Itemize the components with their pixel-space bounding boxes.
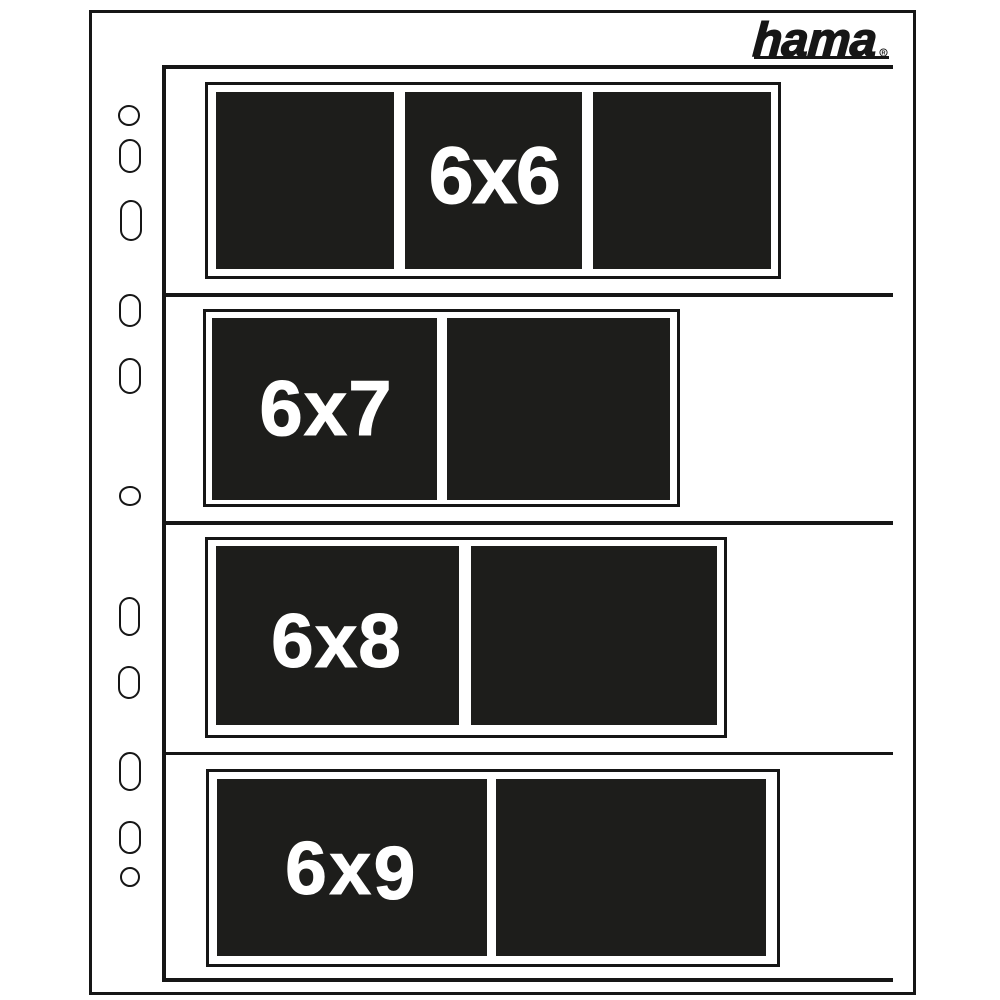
svg-text:R: R — [881, 51, 885, 57]
